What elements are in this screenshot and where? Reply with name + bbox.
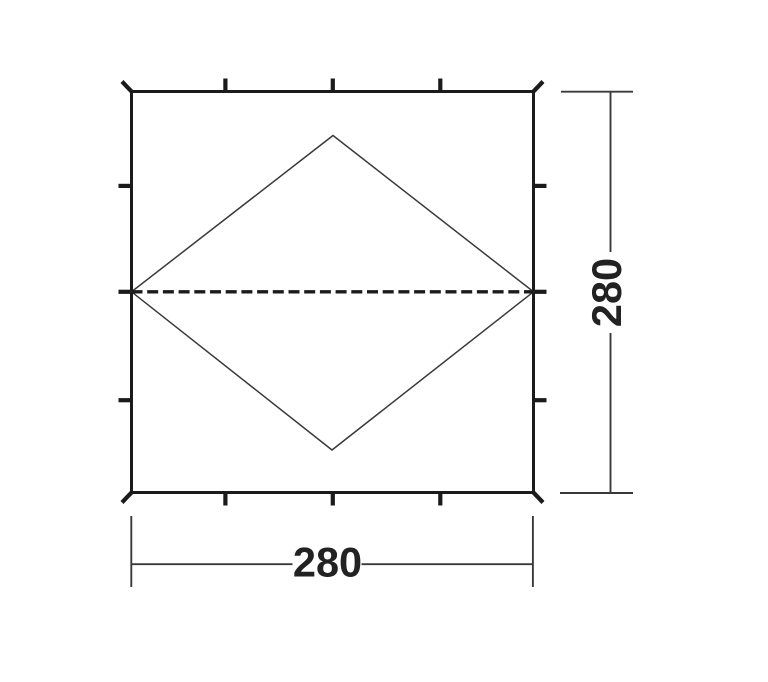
- svg-text:280: 280: [583, 258, 630, 327]
- svg-text:280: 280: [293, 538, 362, 585]
